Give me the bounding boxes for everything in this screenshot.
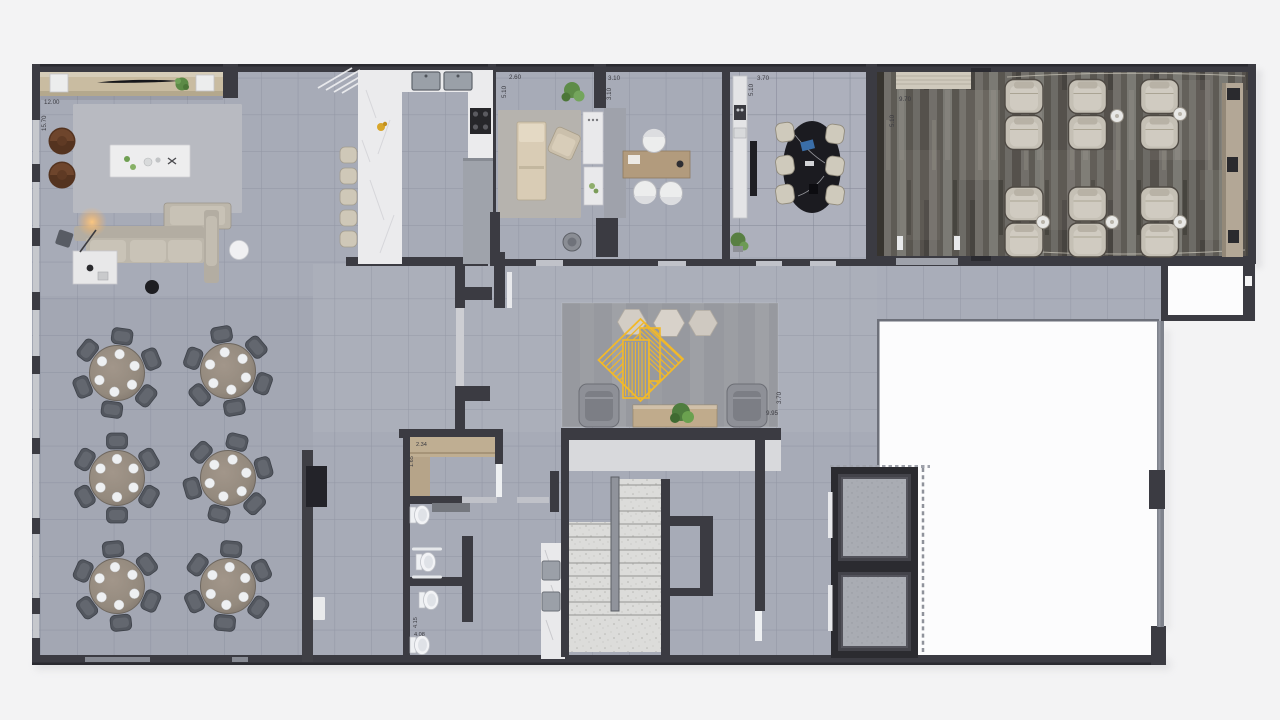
svg-text:2.60: 2.60 bbox=[509, 74, 522, 81]
svg-text:4.08: 4.08 bbox=[414, 632, 425, 638]
svg-text:3.70: 3.70 bbox=[776, 391, 783, 404]
svg-text:9.70: 9.70 bbox=[899, 96, 912, 103]
svg-text:5.10: 5.10 bbox=[501, 85, 508, 98]
svg-text:5.10: 5.10 bbox=[748, 83, 755, 96]
svg-text:3.70: 3.70 bbox=[757, 75, 770, 82]
svg-text:4.15: 4.15 bbox=[413, 617, 419, 628]
svg-text:12.00: 12.00 bbox=[44, 99, 60, 106]
svg-text:2.34: 2.34 bbox=[416, 442, 427, 448]
svg-text:5.10: 5.10 bbox=[889, 114, 896, 127]
svg-text:1.65: 1.65 bbox=[409, 456, 415, 467]
svg-text:3.10: 3.10 bbox=[606, 87, 613, 100]
svg-text:9.95: 9.95 bbox=[766, 410, 779, 417]
svg-text:3.10: 3.10 bbox=[608, 75, 621, 82]
svg-text:15.70: 15.70 bbox=[41, 115, 48, 131]
